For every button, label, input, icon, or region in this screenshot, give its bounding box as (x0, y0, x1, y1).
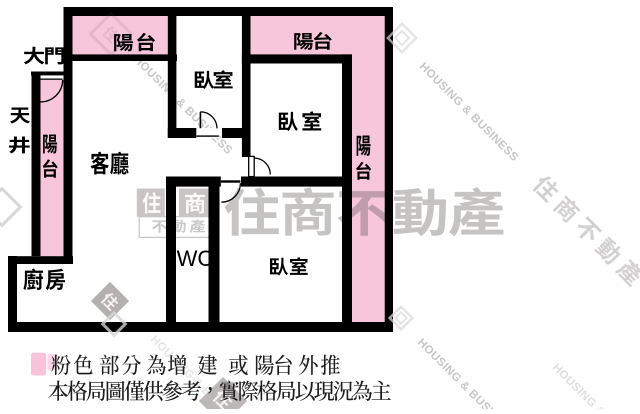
svg-text:WC: WC (177, 246, 214, 271)
